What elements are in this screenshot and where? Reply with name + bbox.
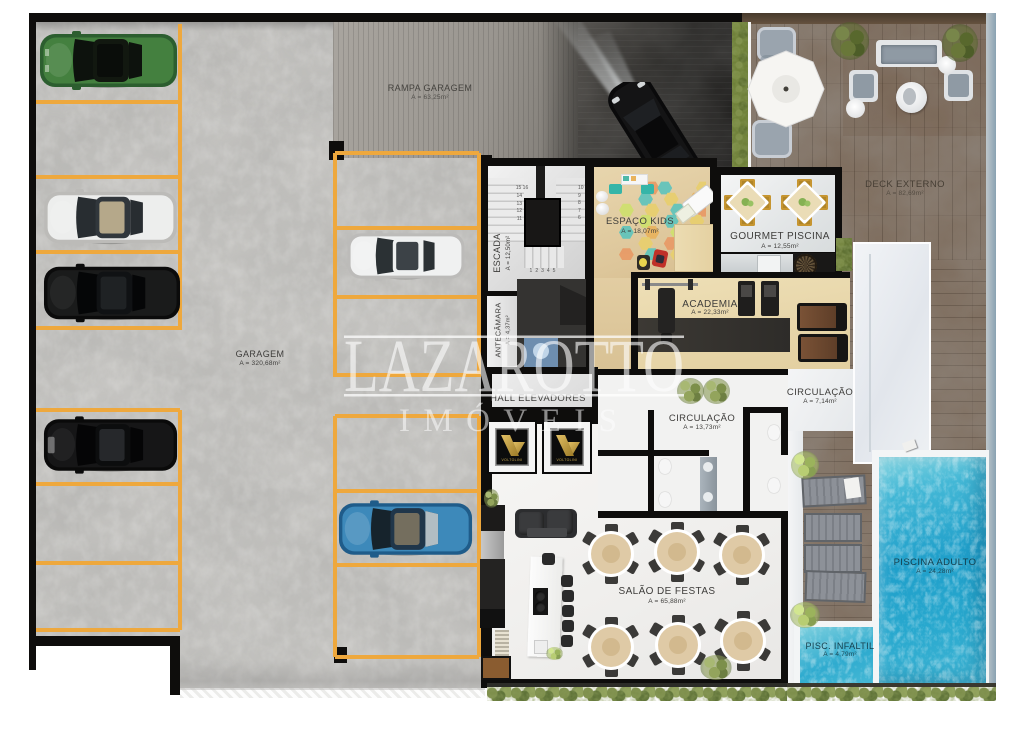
svg-text:IMÓVEIS: IMÓVEIS: [399, 401, 631, 439]
